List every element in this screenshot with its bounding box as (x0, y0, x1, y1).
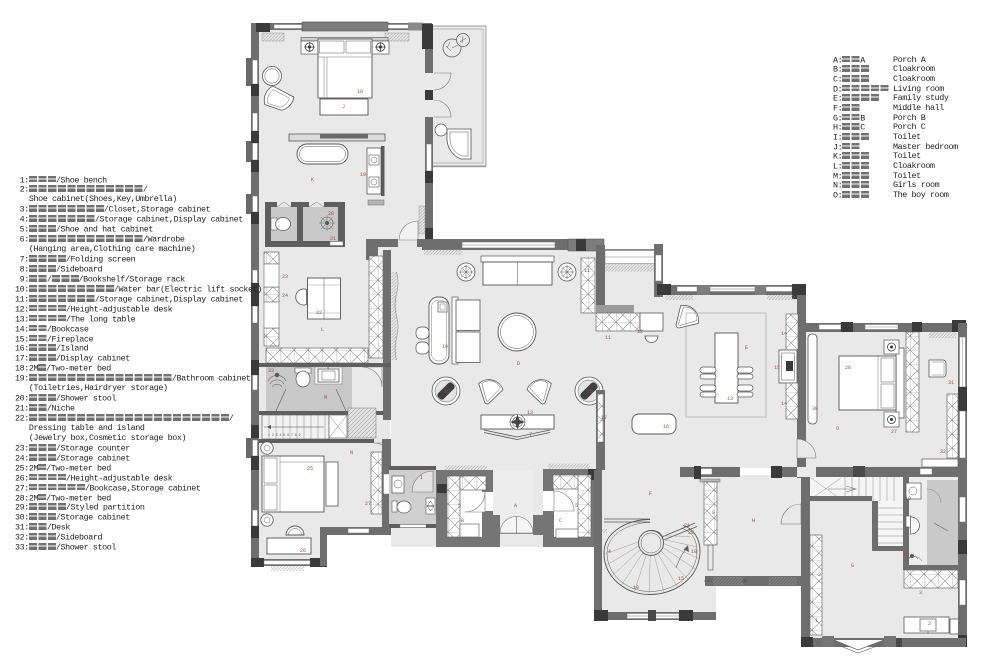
svg-text:9: 9 (712, 510, 715, 516)
svg-text:A: A (514, 503, 517, 509)
svg-text:O: O (836, 426, 839, 432)
svg-text:20: 20 (903, 552, 909, 558)
svg-text:I: I (420, 475, 423, 481)
svg-text:B: B (461, 518, 464, 524)
svg-text:13: 13 (727, 396, 733, 402)
svg-text:11: 11 (605, 335, 611, 341)
svg-text:19: 19 (360, 172, 366, 178)
svg-text:G: G (851, 563, 854, 569)
svg-text:7: 7 (529, 432, 532, 438)
svg-text:26: 26 (300, 548, 306, 554)
svg-text:4: 4 (608, 549, 611, 555)
svg-text:3: 3 (919, 590, 922, 596)
svg-text:32: 32 (940, 449, 946, 455)
svg-text:15: 15 (678, 576, 684, 582)
svg-text:K: K (311, 177, 314, 183)
svg-text:31: 31 (948, 380, 954, 386)
svg-text:5: 5 (575, 503, 578, 509)
svg-text:27: 27 (365, 501, 371, 507)
svg-text:L: L (321, 327, 324, 333)
svg-text:22: 22 (316, 310, 322, 316)
svg-text:14: 14 (781, 401, 787, 407)
svg-text:12: 12 (637, 329, 643, 335)
svg-text:N: N (350, 450, 353, 456)
svg-text:E: E (745, 345, 748, 351)
svg-text:1: 1 (815, 618, 818, 624)
svg-text:F: F (649, 491, 652, 497)
svg-text:J: J (342, 104, 345, 110)
svg-text:14: 14 (781, 331, 787, 337)
svg-text:18: 18 (691, 549, 697, 555)
svg-text:13: 13 (527, 410, 533, 416)
svg-text:23: 23 (282, 274, 288, 280)
svg-text:20: 20 (328, 211, 334, 217)
svg-text:28: 28 (845, 365, 851, 371)
svg-text:27: 27 (891, 429, 897, 435)
svg-text:M: M (324, 395, 327, 401)
svg-text:17: 17 (601, 415, 607, 421)
svg-text:24: 24 (282, 293, 288, 299)
svg-text:15: 15 (444, 389, 450, 395)
svg-text:5: 5 (458, 503, 461, 509)
svg-text:1 2 3 4 5 6 7 8 9: 1 2 3 4 5 6 7 8 9 (268, 433, 301, 437)
svg-text:11: 11 (584, 268, 590, 274)
svg-text:2: 2 (818, 572, 821, 578)
svg-text:15: 15 (774, 365, 780, 371)
svg-text:21: 21 (330, 236, 336, 242)
svg-text:30: 30 (812, 406, 818, 412)
svg-text:21: 21 (684, 523, 690, 529)
svg-text:C: C (559, 518, 562, 524)
svg-text:H: H (752, 518, 755, 524)
svg-text:18: 18 (357, 89, 363, 95)
svg-text:16: 16 (663, 424, 669, 430)
svg-text:10: 10 (442, 344, 448, 350)
svg-text:19: 19 (905, 496, 911, 502)
svg-text:33: 33 (268, 368, 274, 374)
svg-text:D: D (517, 361, 520, 367)
svg-text:10: 10 (633, 585, 639, 591)
svg-text:25: 25 (307, 466, 313, 472)
svg-text:29: 29 (688, 530, 694, 536)
svg-text:2: 2 (928, 621, 931, 627)
svg-text:15: 15 (587, 389, 593, 395)
